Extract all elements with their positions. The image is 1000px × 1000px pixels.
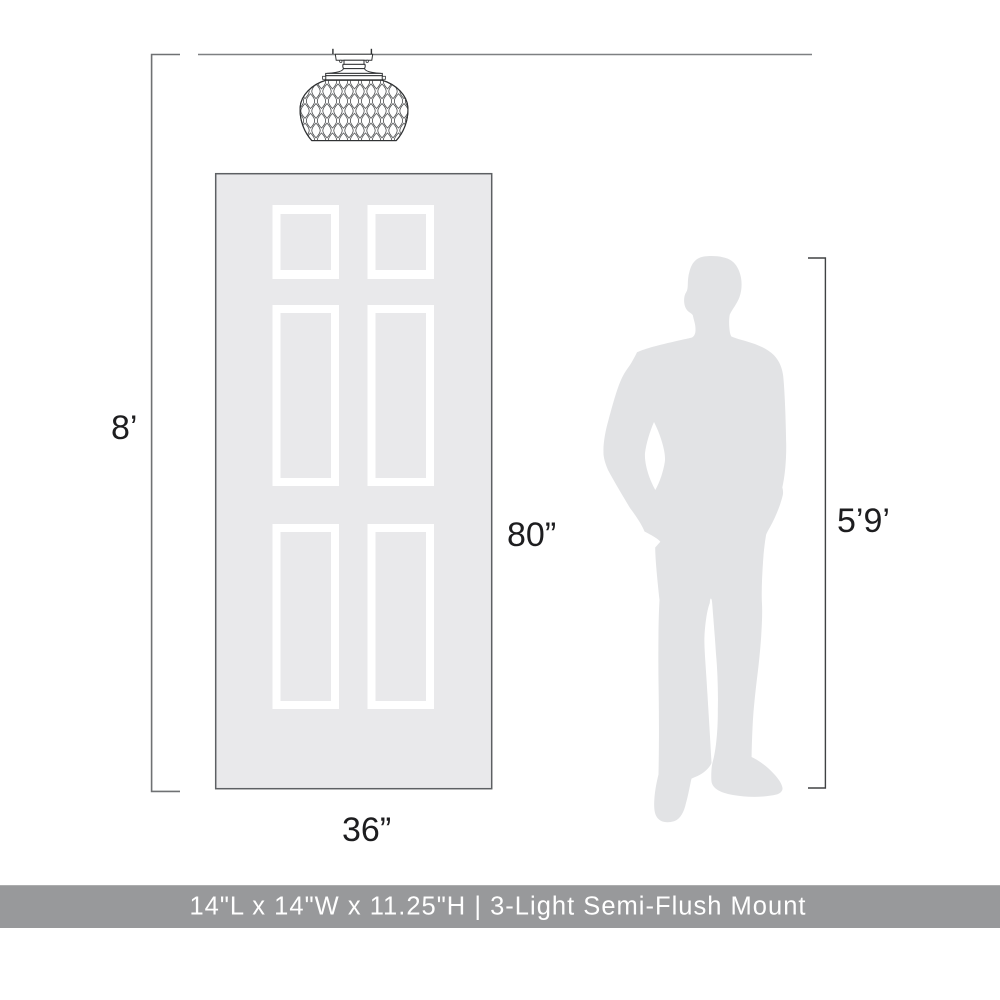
svg-text:14"L x 14"W x 11.25"H | 3-Ligh: 14"L x 14"W x 11.25"H | 3-Light Semi-Flu… — [189, 893, 806, 921]
svg-text:5’9’: 5’9’ — [837, 502, 890, 540]
svg-text:80”: 80” — [507, 516, 556, 554]
svg-text:36”: 36” — [342, 811, 391, 849]
svg-text:8’: 8’ — [111, 409, 137, 447]
